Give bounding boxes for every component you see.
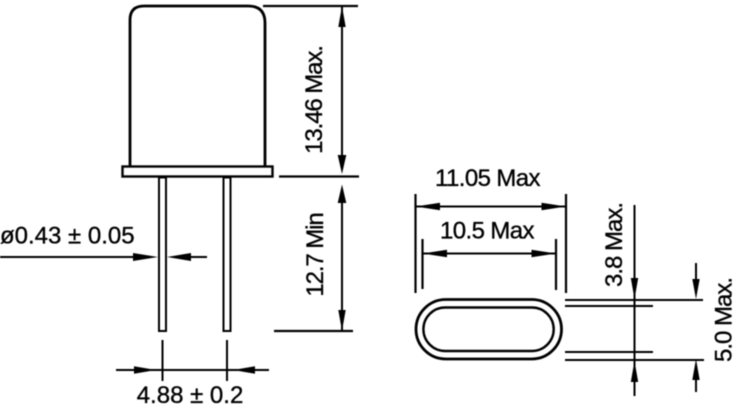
svg-text:12.7 Min: 12.7 Min — [302, 213, 329, 296]
svg-text:11.05 Max: 11.05 Max — [435, 165, 540, 192]
svg-text:13.46 Max.: 13.46 Max. — [301, 46, 328, 154]
svg-text:10.5 Max: 10.5 Max — [440, 218, 535, 245]
svg-text:3.8 Max.: 3.8 Max. — [601, 203, 628, 287]
svg-text:5.0 Max.: 5.0 Max. — [711, 278, 736, 362]
svg-text:ø0.43 ± 0.05: ø0.43 ± 0.05 — [0, 223, 135, 250]
svg-text:4.88 ± 0.2: 4.88 ± 0.2 — [137, 382, 244, 408]
